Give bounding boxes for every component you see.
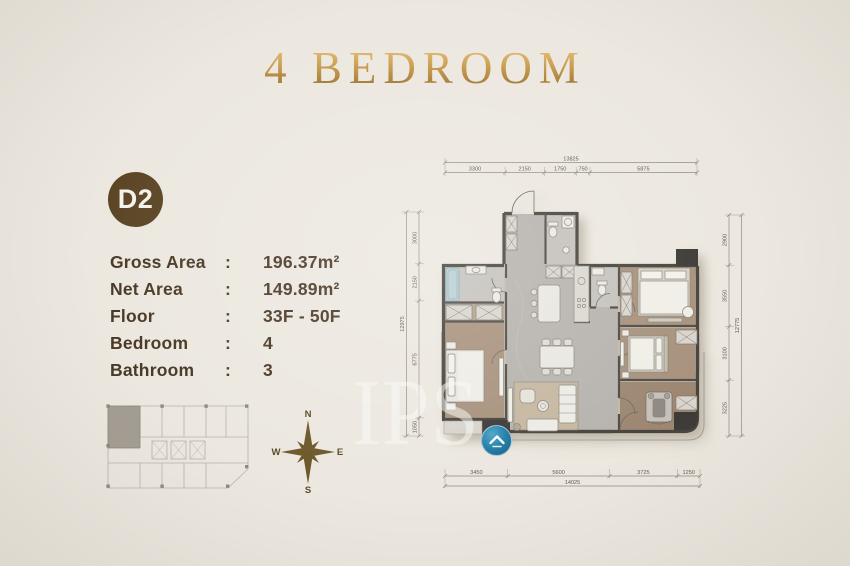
compass-rose: N S W E <box>268 406 350 498</box>
detail-separator: : <box>225 360 263 381</box>
dim-label: 2900 <box>723 234 729 246</box>
detail-value: 196.37m² <box>263 252 390 273</box>
toilet-icon <box>492 292 500 303</box>
roof-chevron-icon <box>485 429 509 453</box>
highlighted-unit <box>108 406 140 448</box>
corner-block <box>674 412 698 430</box>
floor-plan: 13825 3300 2150 1750 750 5875 3450 5600 … <box>388 148 756 504</box>
unit-details: Gross Area : 196.37m² Net Area : 149.89m… <box>110 249 390 384</box>
dim-label: 3450 <box>470 470 482 476</box>
dim-label: 1250 <box>682 470 694 476</box>
dim-label: 13825 <box>563 157 579 163</box>
plant-icon <box>514 424 521 431</box>
dim-label: 3300 <box>469 167 481 173</box>
detail-value: 4 <box>263 333 390 354</box>
dim-label: 3225 <box>723 402 729 414</box>
detail-row-bedroom: Bedroom : 4 <box>110 330 390 357</box>
kitchen-island-icon <box>538 285 560 322</box>
dim-label: 14025 <box>565 480 581 486</box>
detail-label: Net Area <box>110 279 225 300</box>
detail-separator: : <box>225 279 263 300</box>
detail-value: 3 <box>263 360 390 381</box>
dim-label: 5600 <box>552 470 564 476</box>
coffee-table-icon <box>538 401 549 412</box>
armchair-icon <box>520 389 535 403</box>
watermark-logo <box>481 425 512 456</box>
dim-label: 12775 <box>735 318 741 334</box>
detail-row-bathroom: Bathroom : 3 <box>110 357 390 384</box>
sink-icon <box>592 268 604 275</box>
dim-label: 3725 <box>637 470 649 476</box>
dim-label: 3100 <box>723 347 729 359</box>
detail-row-net-area: Net Area : 149.89m² <box>110 276 390 303</box>
unit-type-label: D2 <box>118 184 154 215</box>
plan-body <box>442 191 705 440</box>
toilet-icon <box>598 285 606 295</box>
service-shaft-block <box>676 249 698 266</box>
side-table-icon <box>683 307 694 318</box>
detail-label: Bedroom <box>110 333 225 354</box>
detail-label: Gross Area <box>110 252 225 273</box>
brochure-page: 4 BEDROOM D2 Gross Area : 196.37m² Net A… <box>0 0 850 566</box>
detail-row-floor: Floor : 33F - 50F <box>110 303 390 330</box>
detail-separator: : <box>225 333 263 354</box>
detail-separator: : <box>225 306 263 327</box>
detail-value: 33F - 50F <box>263 306 390 327</box>
dim-label: 1050 <box>413 421 419 433</box>
compass-south-label: S <box>305 485 311 496</box>
sink-icon <box>563 247 569 253</box>
dining-table-icon <box>540 346 574 368</box>
dim-label: 1750 <box>554 167 566 173</box>
toilet-icon <box>549 227 557 237</box>
detail-label: Floor <box>110 306 225 327</box>
building-key-plan <box>102 399 254 499</box>
detail-row-gross-area: Gross Area : 196.37m² <box>110 249 390 276</box>
washer-icon <box>562 216 574 228</box>
detail-value: 149.89m² <box>263 279 390 300</box>
dim-label: 6775 <box>413 353 419 365</box>
page-title: 4 BEDROOM <box>0 42 850 94</box>
dim-label: 3000 <box>413 232 419 244</box>
unit-type-badge: D2 <box>108 172 163 227</box>
dim-label: 12975 <box>400 316 406 332</box>
detail-separator: : <box>225 252 263 273</box>
dim-label: 2150 <box>518 167 530 173</box>
detail-label: Bathroom <box>110 360 225 381</box>
balcony-ledge <box>444 421 482 434</box>
dim-label: 2150 <box>413 276 419 288</box>
compass-star-icon <box>281 420 335 484</box>
compass-west-label: W <box>272 447 281 458</box>
compass-north-label: N <box>305 409 312 420</box>
dim-label: 3550 <box>723 290 729 302</box>
compass-east-label: E <box>337 447 343 458</box>
dim-label: 5875 <box>637 167 649 173</box>
kitchen-counter-icon <box>574 266 589 322</box>
dim-label: 750 <box>578 167 587 173</box>
tv-console-icon <box>499 358 504 396</box>
